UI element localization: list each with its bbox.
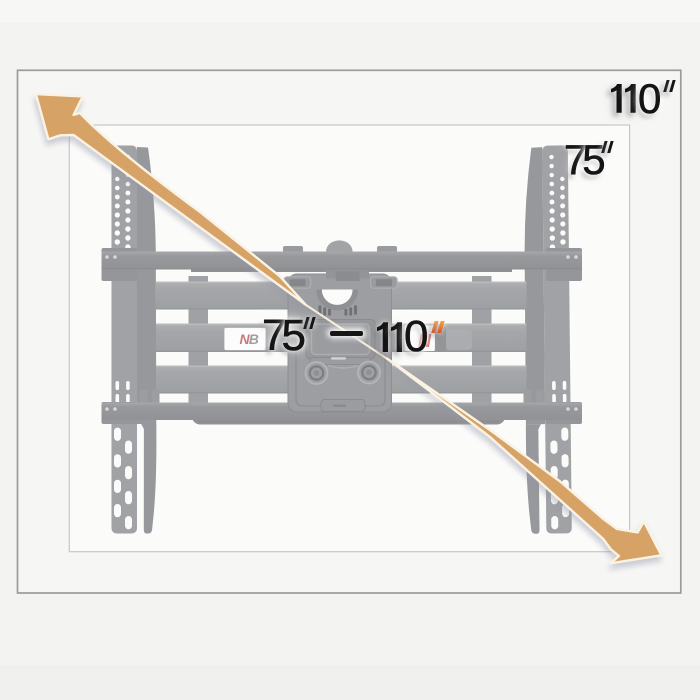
svg-text:B: B xyxy=(249,331,259,347)
